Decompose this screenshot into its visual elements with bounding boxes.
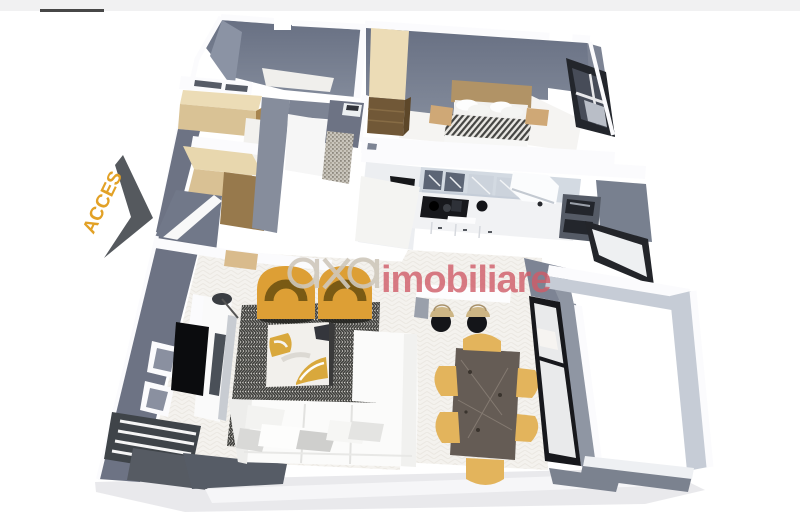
svg-text:imobiliare: imobiliare — [381, 259, 551, 301]
